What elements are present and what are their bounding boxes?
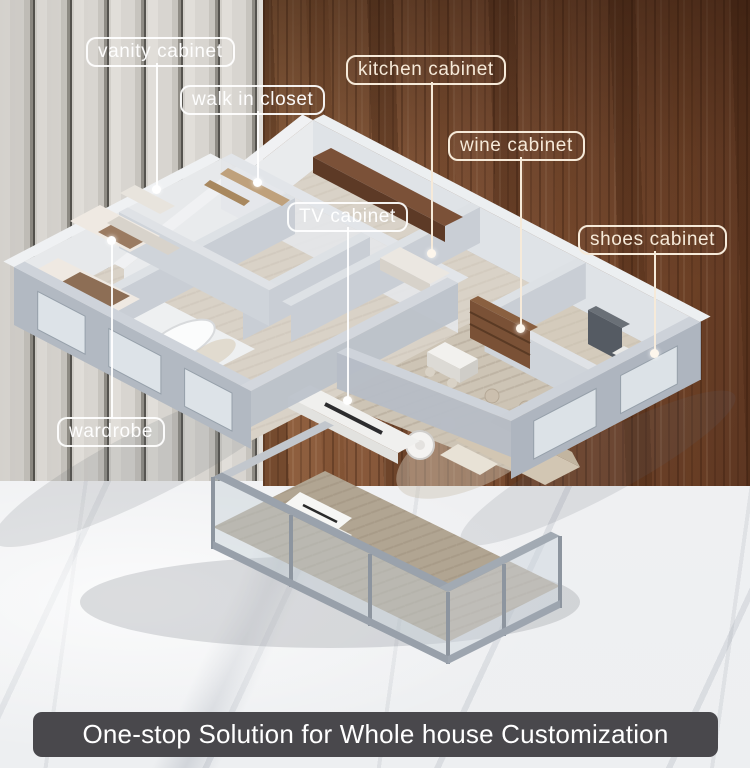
callout-kitchen-cabinet: kitchen cabinet (346, 55, 506, 85)
leader-line-wardrobe (111, 240, 113, 418)
callout-tv-cabinet: TV cabinet (287, 202, 408, 232)
callout-wine-cabinet-label: wine cabinet (460, 135, 573, 156)
poster: vanity cabinet walk in closet kitchen ca… (0, 0, 750, 768)
callout-wardrobe: wardrobe (57, 417, 165, 447)
leader-dot-wine-cabinet (516, 324, 525, 333)
leader-line-vanity-cabinet (156, 63, 158, 189)
banner: One-stop Solution for Whole house Custom… (33, 712, 718, 757)
banner-text: One-stop Solution for Whole house Custom… (82, 719, 668, 750)
leader-line-walk-in-closet (257, 111, 259, 182)
leader-dot-vanity-cabinet (152, 185, 161, 194)
callout-kitchen-cabinet-label: kitchen cabinet (358, 59, 494, 80)
callout-walk-in-closet: walk in closet (180, 85, 325, 115)
callout-wine-cabinet: wine cabinet (448, 131, 585, 161)
callout-vanity-cabinet-label: vanity cabinet (98, 41, 223, 62)
callout-vanity-cabinet: vanity cabinet (86, 37, 235, 67)
leader-line-wine-cabinet (520, 157, 522, 328)
callout-shoes-cabinet-label: shoes cabinet (590, 229, 715, 250)
leader-line-shoes-cabinet (654, 251, 656, 353)
leader-dot-tv-cabinet (343, 396, 352, 405)
leader-line-kitchen-cabinet (431, 82, 433, 253)
callout-wardrobe-label: wardrobe (69, 421, 153, 442)
leader-dot-shoes-cabinet (650, 349, 659, 358)
callout-shoes-cabinet: shoes cabinet (578, 225, 727, 255)
callout-tv-cabinet-label: TV cabinet (299, 206, 396, 227)
callout-walk-in-closet-label: walk in closet (192, 89, 313, 110)
leader-line-tv-cabinet (347, 227, 349, 400)
leader-dot-kitchen-cabinet (427, 249, 436, 258)
leader-dot-wardrobe (107, 236, 116, 245)
leader-dot-walk-in-closet (253, 178, 262, 187)
